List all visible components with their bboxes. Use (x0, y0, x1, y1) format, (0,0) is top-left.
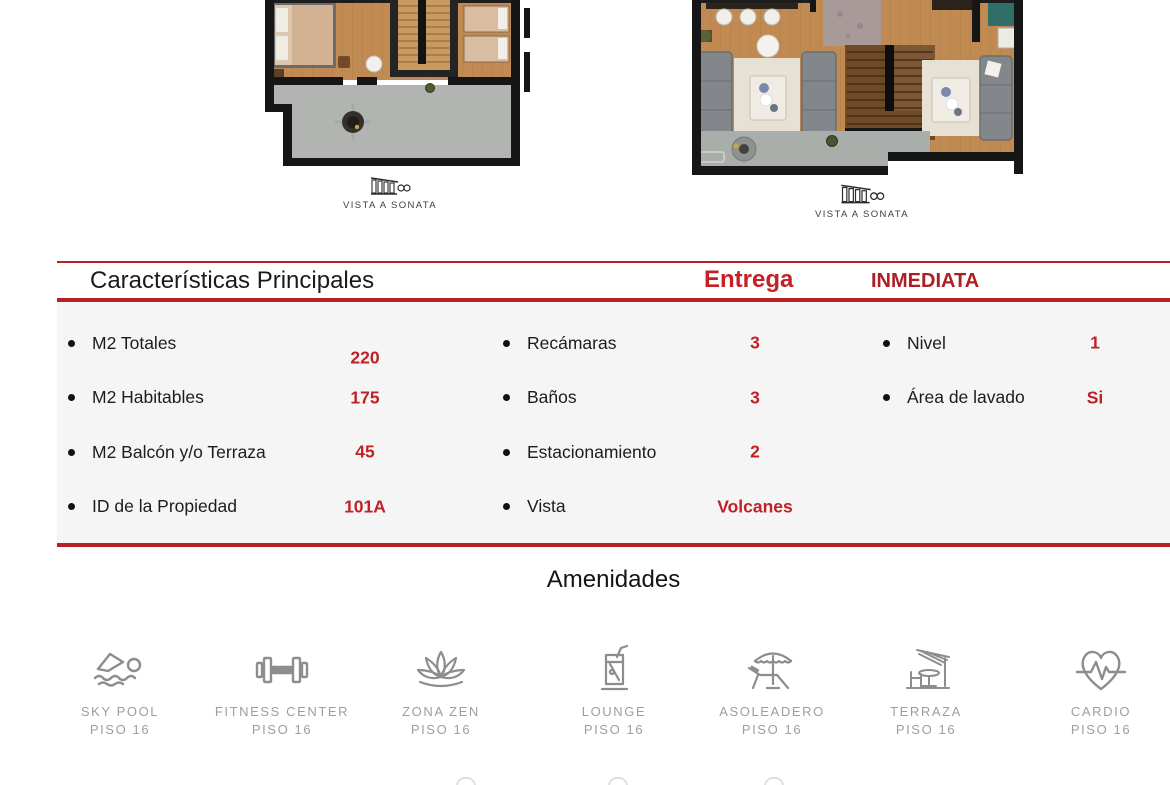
feature-label: ID de la Propiedad (92, 496, 237, 517)
amenities-title: Amenidades (57, 566, 1170, 594)
feature-row: M2 Habitables 175 (60, 371, 410, 426)
amenity-terraza: TERRAZA PISO 16 (838, 644, 1014, 739)
amenity-asoleadero: ASOLEADERO PISO 16 (684, 644, 860, 739)
bullet-icon (68, 449, 75, 456)
feature-value: 2 (695, 442, 815, 463)
feature-row: Estacionamiento 2 (495, 425, 825, 480)
features-header: Características Principales Entrega INME… (57, 263, 1170, 298)
features-column-3: Nivel 1 Área de lavado Si (875, 316, 1145, 425)
feature-row: Baños 3 (495, 371, 825, 426)
amenity-name: ZONA ZEN (353, 703, 529, 721)
amenity-sky-pool: SKY POOL PISO 16 (32, 644, 208, 739)
amenity-floor: PISO 16 (838, 721, 1014, 739)
sonata-view-icon (368, 174, 412, 198)
feature-value: 175 (325, 387, 405, 408)
features-section: Características Principales Entrega INME… (57, 261, 1170, 547)
feature-label: Vista (527, 496, 566, 517)
feature-value: Volcanes (695, 496, 815, 517)
terrace-table-icon (895, 644, 957, 696)
amenity-name: ASOLEADERO (684, 703, 860, 721)
feature-row: ID de la Propiedad 101A (60, 480, 410, 535)
amenity-name: TERRAZA (838, 703, 1014, 721)
bullet-icon (68, 394, 75, 401)
feature-value: Si (1055, 387, 1135, 408)
bullet-icon (68, 503, 75, 510)
feature-label: M2 Totales (92, 333, 176, 354)
drink-glass-icon (583, 644, 645, 696)
floor-plan-terrace-level (252, 0, 562, 175)
red-divider-bottom (57, 543, 1170, 547)
amenity-floor: PISO 16 (1013, 721, 1170, 739)
floor-plan-terrace-svg (252, 0, 562, 175)
amenity-fitness-center: FITNESS CENTER PISO 16 (194, 644, 370, 739)
feature-row: Vista Volcanes (495, 480, 825, 535)
features-title: Características Principales (90, 267, 374, 295)
property-sheet: VISTA A SONATA (0, 0, 1170, 785)
feature-label: Nivel (907, 333, 946, 354)
vista-caption-text: VISTA A SONATA (310, 200, 470, 211)
feature-value: 3 (695, 387, 815, 408)
amenity-floor: PISO 16 (526, 721, 702, 739)
vista-caption-text: VISTA A SONATA (782, 209, 942, 220)
bullet-icon (883, 394, 890, 401)
feature-label: Recámaras (527, 333, 616, 354)
feature-row: Nivel 1 (875, 316, 1145, 371)
feature-label: M2 Habitables (92, 387, 204, 408)
amenity-name: LOUNGE (526, 703, 702, 721)
bullet-icon (503, 503, 510, 510)
bullet-icon (883, 340, 890, 347)
bullet-icon (68, 340, 75, 347)
bullet-icon (503, 340, 510, 347)
cutoff-icon-top (456, 777, 476, 785)
feature-row: Recámaras 3 (495, 316, 825, 371)
amenity-floor: PISO 16 (194, 721, 370, 739)
heart-pulse-icon (1070, 644, 1132, 696)
amenity-name: CARDIO (1013, 703, 1170, 721)
feature-row: Área de lavado Si (875, 371, 1145, 426)
feature-label: Baños (527, 387, 577, 408)
delivery-label: Entrega (704, 266, 793, 294)
amenity-name: FITNESS CENTER (194, 703, 370, 721)
feature-value: 3 (695, 333, 815, 354)
swimmer-icon (89, 644, 151, 696)
feature-label: M2 Balcón y/o Terraza (92, 442, 266, 463)
sonata-view-icon (838, 181, 886, 207)
features-column-2: Recámaras 3 Baños 3 Estacionamiento 2 Vi… (495, 316, 825, 534)
amenity-floor: PISO 16 (32, 721, 208, 739)
dumbbell-icon (251, 644, 313, 696)
parasol-lounger-icon (741, 644, 803, 696)
bullet-icon (503, 394, 510, 401)
vista-caption-right: VISTA A SONATA (782, 181, 942, 220)
feature-row: M2 Totales 220 (60, 316, 410, 371)
vista-caption-left: VISTA A SONATA (310, 174, 470, 211)
amenity-floor: PISO 16 (684, 721, 860, 739)
features-column-1: M2 Totales 220 M2 Habitables 175 M2 Balc… (60, 316, 410, 534)
amenity-lounge: LOUNGE PISO 16 (526, 644, 702, 739)
features-body: M2 Totales 220 M2 Habitables 175 M2 Balc… (57, 302, 1170, 543)
floor-plan-living-svg (680, 0, 1035, 178)
cutoff-icon-top (608, 777, 628, 785)
amenity-zona-zen: ZONA ZEN PISO 16 (353, 644, 529, 739)
feature-value: 101A (325, 496, 405, 517)
delivery-status: INMEDIATA (871, 270, 979, 293)
feature-label: Estacionamiento (527, 442, 656, 463)
bullet-icon (503, 449, 510, 456)
feature-value: 220 (325, 348, 405, 369)
feature-value: 45 (325, 442, 405, 463)
cutoff-icon-top (764, 777, 784, 785)
amenity-floor: PISO 16 (353, 721, 529, 739)
feature-row: M2 Balcón y/o Terraza 45 (60, 425, 410, 480)
lotus-icon (410, 644, 472, 696)
floor-plan-living-level (680, 0, 1035, 178)
feature-label: Área de lavado (907, 387, 1025, 408)
feature-value: 1 (1055, 333, 1135, 354)
amenity-name: SKY POOL (32, 703, 208, 721)
amenity-cardio: CARDIO PISO 16 (1013, 644, 1170, 739)
